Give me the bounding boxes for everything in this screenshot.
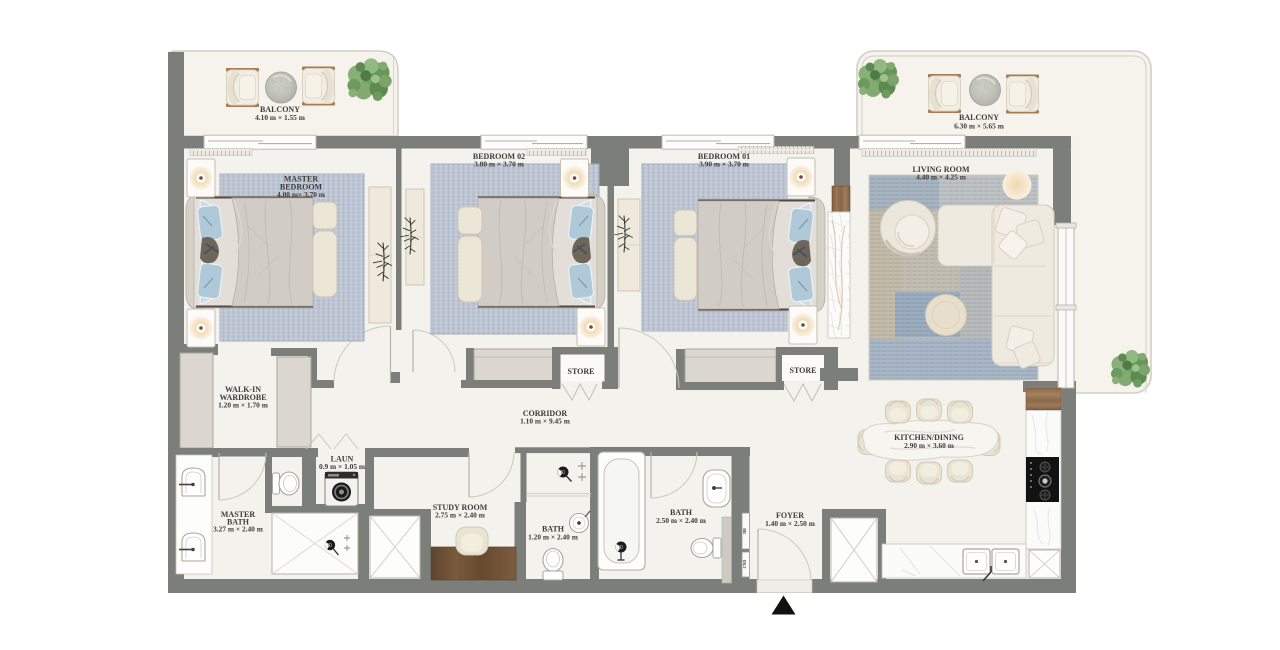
svg-text:STORE: STORE [568, 367, 595, 376]
svg-text:4.00 m× 3.70 m: 4.00 m× 3.70 m [277, 190, 326, 199]
svg-text:3.90 m × 3.70 m: 3.90 m × 3.70 m [699, 160, 750, 169]
svg-text:4.40 m × 4.25 m: 4.40 m × 4.25 m [916, 173, 967, 182]
svg-text:3.80 m × 3.70 m: 3.80 m × 3.70 m [474, 160, 525, 169]
svg-text:2.90 m × 3.60 m: 2.90 m × 3.60 m [904, 441, 955, 450]
svg-text:4.10 m × 1.55 m: 4.10 m × 1.55 m [255, 113, 306, 122]
svg-text:1.20 m × 2.40 m: 1.20 m × 2.40 m [528, 533, 579, 542]
svg-text:DB: DB [742, 528, 747, 534]
svg-text:2.75 m × 2.40 m: 2.75 m × 2.40 m [435, 511, 486, 520]
svg-text:1.10 m × 9.45 m: 1.10 m × 9.45 m [520, 417, 571, 426]
svg-text:3.27 m × 2.40 m: 3.27 m × 2.40 m [213, 525, 264, 534]
svg-text:CND: CND [742, 560, 747, 569]
svg-text:1.40 m × 2.50 m: 1.40 m × 2.50 m [765, 519, 816, 528]
svg-text:6.30 m × 5.65 m: 6.30 m × 5.65 m [954, 122, 1005, 131]
svg-text:1.20 m × 1.70 m: 1.20 m × 1.70 m [218, 401, 269, 410]
svg-text:0.9 m × 1.05 m: 0.9 m × 1.05 m [319, 462, 366, 471]
svg-text:STORE: STORE [790, 366, 817, 375]
svg-text:2.50 m × 2.40 m: 2.50 m × 2.40 m [656, 516, 707, 525]
